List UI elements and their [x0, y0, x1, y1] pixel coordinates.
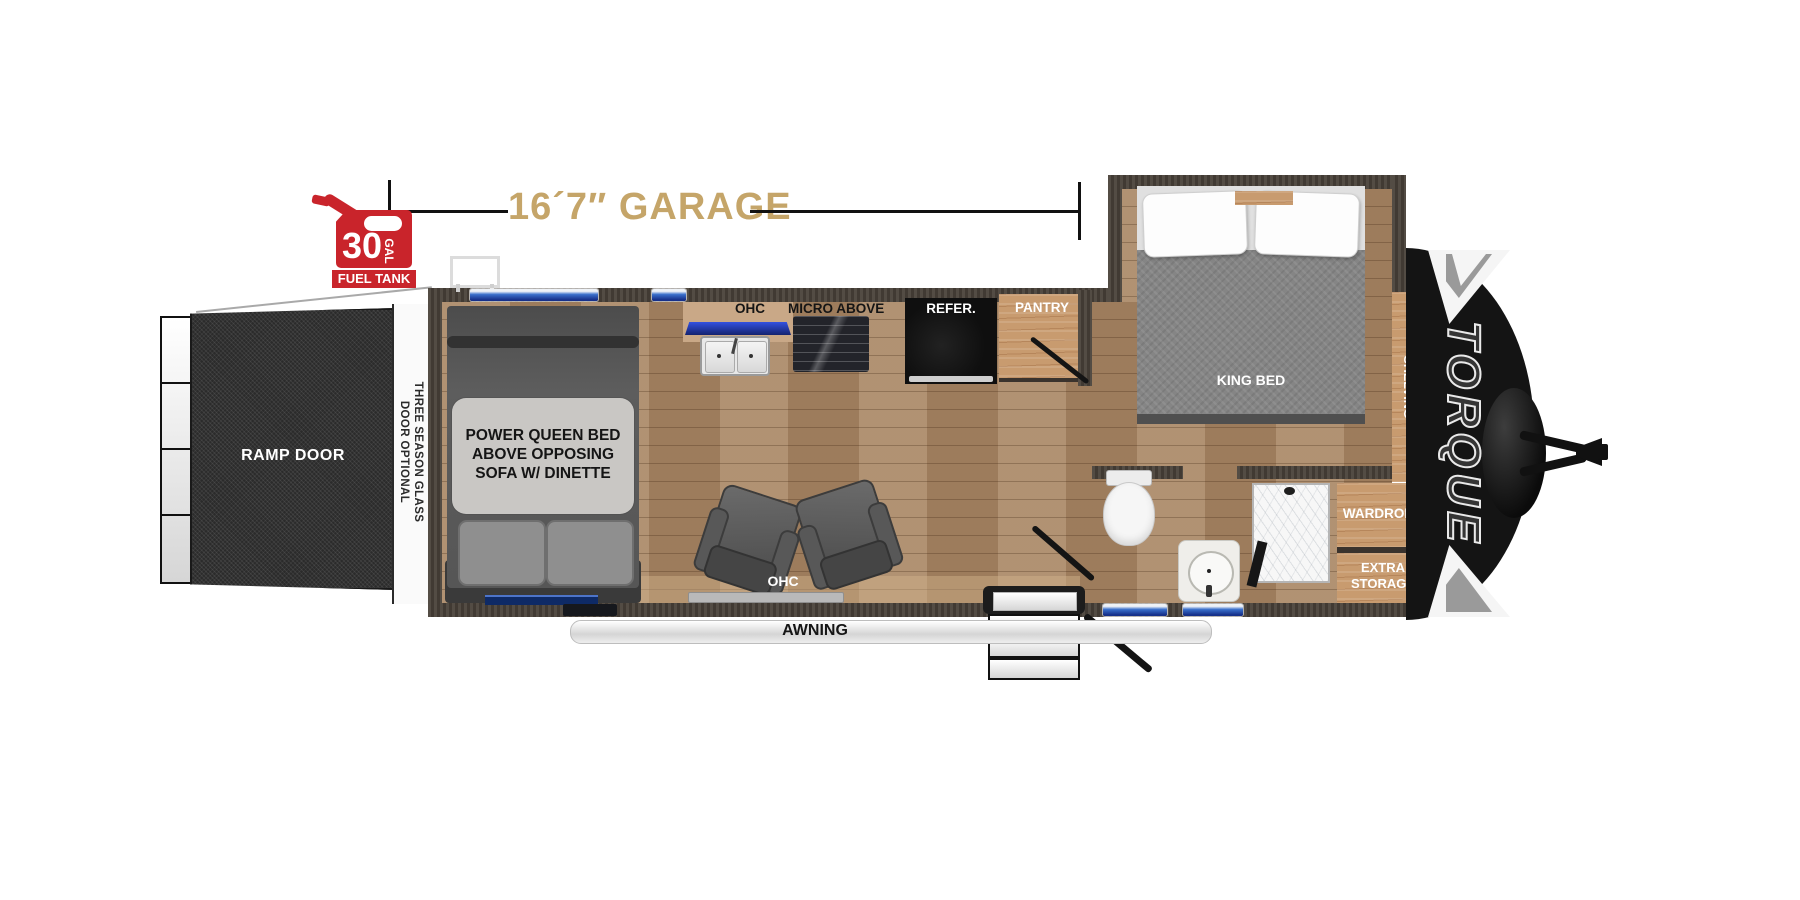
dimension-tick-right: [1078, 182, 1081, 240]
queen-bed-line1: POWER QUEEN BED: [452, 426, 634, 445]
kitchen-top-window: [652, 289, 686, 301]
floorplan-canvas: 16´7″ GARAGE 30 GAL FUEL TANK RAMP DOOR …: [0, 0, 1800, 900]
counter-edge: [685, 322, 791, 335]
bedroom-partition-wall: [1078, 290, 1092, 386]
refer-label: REFER.: [915, 301, 987, 316]
queen-bed-label: POWER QUEEN BED ABOVE OPPOSING SOFA W/ D…: [452, 426, 634, 483]
toilet: [1103, 470, 1153, 546]
ramp-door-label: RAMP DOOR: [203, 446, 383, 466]
bath-sink: [1178, 540, 1240, 602]
fuel-capacity: 30: [338, 226, 386, 266]
fuel-unit: GAL: [382, 238, 396, 264]
awning-bar: [570, 620, 1212, 644]
sofa-pillow: [546, 520, 634, 586]
sink-drain: [717, 354, 721, 358]
tv-bracket-leg: [456, 284, 460, 292]
entry-step: [988, 658, 1080, 680]
garage-bottom-window: [563, 604, 617, 616]
garage-dimension-label: 16´7″ GARAGE: [508, 184, 746, 230]
slide-right-wall: [1392, 175, 1406, 295]
three-season-label: THREE SEASON GLASS DOOR OPTIONAL: [395, 332, 425, 572]
bath-sink-faucet: [1206, 585, 1212, 597]
micro-above-label: MICRO ABOVE: [788, 301, 884, 316]
queen-bed-line3: SOFA W/ DINETTE: [452, 464, 634, 483]
bath-bottom-window: [1183, 604, 1243, 616]
three-season-line2: DOOR OPTIONAL: [397, 332, 411, 572]
rear-wall: [428, 288, 442, 617]
propane-tank-cover: [1482, 388, 1546, 518]
garage-top-window: [470, 289, 598, 301]
shower-head: [1284, 487, 1295, 495]
queen-bed-callout: POWER QUEEN BED ABOVE OPPOSING SOFA W/ D…: [452, 398, 634, 514]
awning-label: AWNING: [770, 622, 860, 640]
king-bed-label: KING BED: [1201, 372, 1301, 388]
slide-left-wall: [1108, 175, 1122, 302]
hitch-ball-stub: [1598, 444, 1608, 460]
ramp-edge-divider: [162, 382, 190, 384]
sink-drain: [749, 354, 753, 358]
entry-side-window: [1103, 604, 1167, 616]
pantry-label: PANTRY: [1008, 300, 1076, 316]
fuel-tank-icon: 30 GAL FUEL TANK: [310, 192, 420, 292]
three-season-line1: THREE SEASON GLASS: [411, 332, 425, 572]
bath-sink-drain: [1207, 569, 1211, 573]
shower: [1252, 483, 1330, 583]
queen-bed-sofa: POWER QUEEN BED ABOVE OPPOSING SOFA W/ D…: [445, 306, 641, 603]
kitchen-sink: [700, 336, 770, 376]
ramp-door: RAMP DOOR: [190, 308, 396, 590]
sofa-pillow: [458, 520, 546, 586]
ohc-bottom-label: OHC: [758, 573, 808, 589]
stove: [793, 316, 869, 372]
refrigerator-base: [909, 376, 993, 382]
dimension-line-right: [750, 210, 1078, 213]
bed-headboard-shelf: [1235, 191, 1293, 205]
king-bed-blanket: [1137, 250, 1365, 420]
ramp-edge-divider: [162, 448, 190, 450]
entry-landing-tread: [993, 592, 1077, 611]
toilet-bowl: [1103, 482, 1155, 546]
fuel-tank-label: FUEL TANK: [332, 270, 416, 288]
queen-bed-headrail: [447, 336, 639, 348]
king-bed: KING BED: [1137, 186, 1365, 428]
queen-bed-line2: ABOVE OPPOSING: [452, 445, 634, 464]
ohc-shelf: [688, 592, 844, 603]
king-bed-foot: [1137, 414, 1365, 424]
king-pillow: [1142, 190, 1248, 258]
ramp-edge-divider: [162, 514, 190, 516]
entry-landing: [983, 586, 1085, 614]
ramp-edge: [160, 316, 192, 584]
ohc-top-label: OHC: [725, 301, 775, 317]
